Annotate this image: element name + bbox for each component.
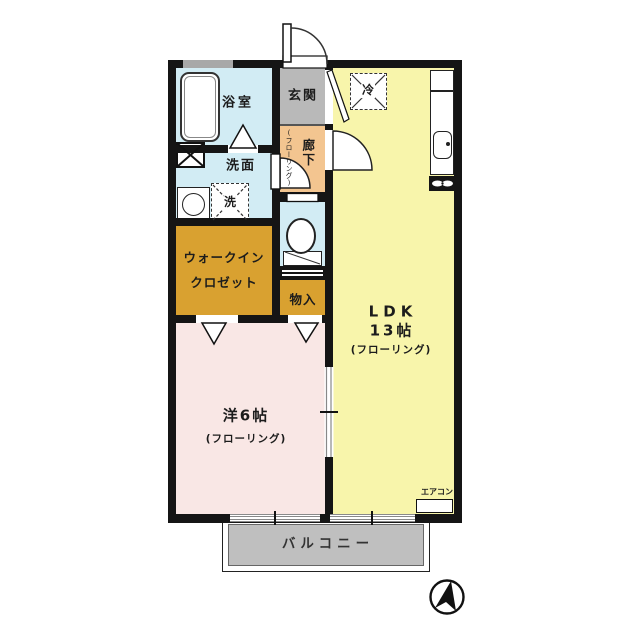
toilet-door (287, 194, 318, 202)
ldk-label: LDK (369, 303, 418, 320)
hall-ldk-door (333, 131, 372, 170)
ldk-floor-note: (フローリング) (351, 344, 432, 356)
pipe-space-x-icon (178, 144, 203, 166)
walk-in-closet-label-line2: クロゼット (190, 276, 258, 290)
balcony-label: バルコニー (282, 537, 374, 553)
western-room-floor-note: (フローリング) (206, 433, 287, 445)
storage-label: 物入 (289, 293, 316, 307)
bathroom-label: 浴室 (222, 97, 254, 112)
bathroom-door-triangle (230, 125, 256, 148)
ldk-size-label: 13帖 (370, 322, 415, 339)
entrance-label: 玄関 (288, 90, 318, 105)
room-partition-sliding-door (320, 367, 338, 457)
floor-plan: 浴室 洗面 洗 玄関 廊下 (フローリング) 冷 ウォークイン クロゼット 物入… (0, 0, 640, 640)
storage-door-triangle (295, 323, 318, 342)
toilet-bowl (287, 219, 315, 253)
hall-ldk-opening (325, 130, 333, 170)
hallway-floor-note: (フローリング) (285, 129, 293, 187)
closet-door-triangle (202, 323, 226, 344)
ldk-window (330, 511, 415, 525)
washing-machine-label: 洗 (223, 196, 237, 210)
hallway-label: 廊下 (300, 139, 314, 168)
closet-opening (196, 315, 238, 323)
entrance-door-leaf (283, 24, 291, 62)
storage-opening (288, 315, 322, 323)
north-arrow-icon (431, 581, 464, 614)
stove-icon (429, 176, 455, 191)
western-room-label: 洋6帖 (223, 407, 269, 424)
washroom-label: 洗面 (226, 160, 256, 175)
walk-in-closet-label-line1: ウォークイン (183, 251, 264, 265)
refrigerator-label: 冷 (361, 84, 375, 98)
western-room-window (230, 511, 320, 525)
air-conditioner-label: エアコン (421, 487, 453, 496)
washroom-door-leaf (271, 154, 280, 189)
